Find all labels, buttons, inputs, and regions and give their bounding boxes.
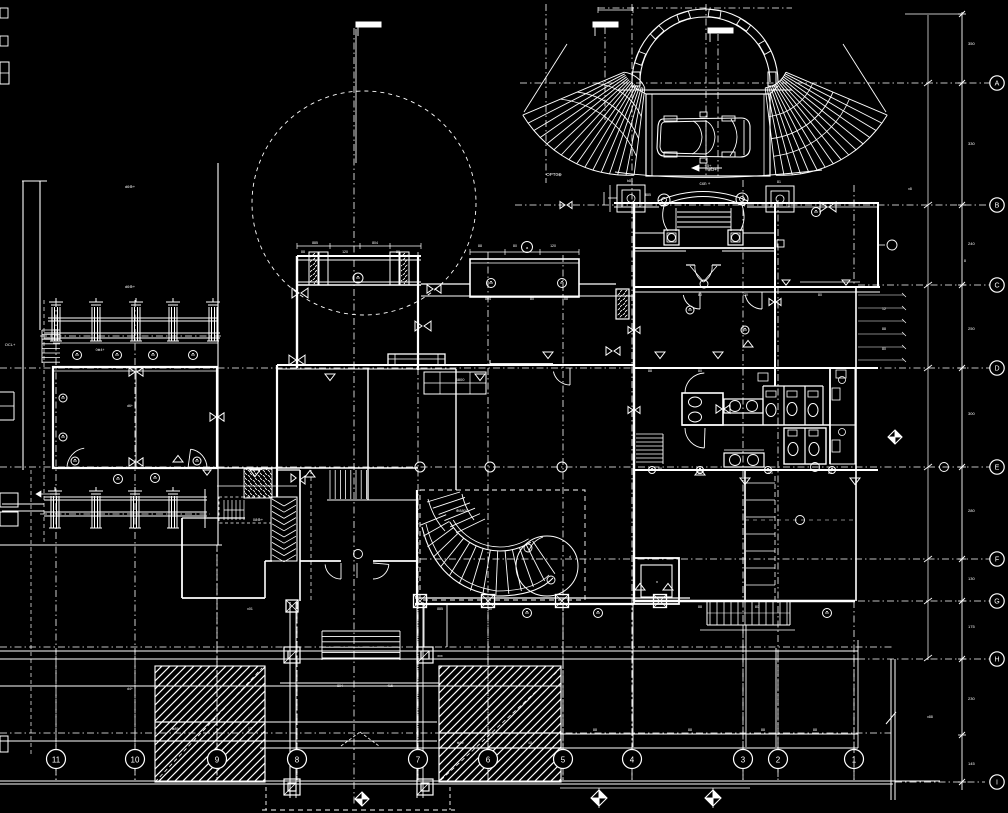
svg-text:8: 8 (295, 756, 300, 765)
svg-text:A: A (995, 80, 1000, 87)
svg-text:8800: 8800 (456, 377, 466, 382)
svg-text:12: 12 (882, 307, 886, 311)
svg-text:80: 80 (396, 250, 400, 254)
svg-text:885: 885 (437, 607, 443, 611)
svg-text:d6+: d6+ (127, 404, 133, 408)
svg-text:7: 7 (416, 756, 421, 765)
svg-text:804: 804 (337, 684, 343, 688)
svg-text:E: E (995, 464, 1000, 471)
svg-text:80: 80 (530, 297, 534, 301)
svg-text:88: 88 (593, 728, 597, 732)
svg-text:8: 8 (964, 259, 966, 263)
svg-text:350: 350 (968, 41, 975, 46)
svg-text:80: 80 (698, 293, 702, 297)
svg-text:40: 40 (528, 741, 532, 745)
svg-text:b81: b81 (627, 179, 633, 183)
svg-text:250: 250 (968, 326, 975, 331)
svg-text:12: 12 (248, 727, 252, 731)
svg-text:5: 5 (561, 756, 566, 765)
svg-text:280: 280 (968, 508, 975, 513)
svg-text:G: G (994, 598, 999, 605)
svg-text:80: 80 (488, 607, 492, 611)
svg-text:804: 804 (372, 241, 378, 245)
svg-text:120: 120 (550, 244, 556, 248)
svg-text:885: 885 (645, 193, 651, 197)
svg-text:OPT0⊕: OPT0⊕ (546, 172, 562, 177)
svg-text:175: 175 (968, 624, 975, 629)
svg-text:x: x (656, 579, 658, 584)
svg-text:⊕89: ⊕89 (457, 741, 464, 745)
svg-text:d: d (569, 555, 571, 559)
svg-text:88: 88 (648, 369, 652, 373)
svg-text:xxx: xxx (437, 654, 443, 658)
svg-text:9: 9 (215, 756, 220, 765)
svg-text:80: 80 (755, 605, 759, 609)
svg-text:F: F (995, 556, 999, 563)
svg-text:08⊕+: 08⊕+ (253, 517, 264, 522)
svg-text:C: C (994, 282, 999, 289)
svg-text:D: D (994, 365, 999, 372)
svg-text:300: 300 (968, 411, 975, 416)
svg-text:88: 88 (698, 605, 702, 609)
svg-text:⌁5+: ⌁5+ (705, 163, 713, 168)
svg-text:10: 10 (131, 756, 140, 765)
svg-text:88: 88 (564, 297, 568, 301)
svg-text:330: 330 (968, 141, 975, 146)
svg-text:88: 88 (658, 467, 662, 471)
svg-text:H: H (994, 656, 999, 663)
svg-text:240: 240 (968, 241, 975, 246)
svg-text:d6⊕+: d6⊕+ (125, 184, 136, 189)
svg-text:120: 120 (742, 293, 748, 297)
svg-text:3: 3 (741, 756, 746, 765)
svg-text:81: 81 (777, 180, 781, 184)
svg-text:x01: x01 (247, 607, 253, 611)
svg-text:I: I (996, 779, 998, 786)
svg-text:885: 885 (312, 241, 318, 245)
svg-text:80: 80 (818, 293, 822, 297)
svg-text:2: 2 (776, 756, 781, 765)
svg-text:cxn +: cxn + (700, 181, 711, 186)
svg-text:6: 6 (486, 756, 491, 765)
svg-text:4: 4 (630, 756, 635, 765)
svg-text:11: 11 (52, 756, 61, 765)
svg-text:B: B (995, 202, 1000, 209)
svg-text:804: 804 (485, 297, 491, 301)
svg-text:145: 145 (968, 761, 975, 766)
svg-text:x88: x88 (927, 715, 933, 719)
svg-text:d4+: d4+ (127, 687, 133, 691)
svg-text:80: 80 (513, 244, 517, 248)
svg-text:88: 88 (301, 250, 305, 254)
svg-text:OCL+: OCL+ (5, 342, 16, 347)
svg-text:88: 88 (688, 728, 692, 732)
svg-text:⊕89: ⊕89 (172, 727, 179, 731)
svg-text:88: 88 (478, 244, 482, 248)
svg-text:230: 230 (968, 696, 975, 701)
svg-text:80: 80 (698, 369, 702, 373)
svg-text:88: 88 (761, 728, 765, 732)
svg-text:88: 88 (882, 327, 886, 331)
svg-text:x8: x8 (908, 187, 912, 191)
svg-text:d6⊕+: d6⊕+ (125, 284, 136, 289)
svg-text:80: 80 (882, 347, 886, 351)
svg-text:88: 88 (813, 728, 817, 732)
svg-text:0⊕4+: 0⊕4+ (96, 348, 105, 352)
svg-text:415: 415 (387, 684, 393, 688)
svg-text:120: 120 (342, 250, 348, 254)
svg-text:⊕8800: ⊕8800 (456, 508, 469, 513)
svg-text:130: 130 (968, 576, 975, 581)
